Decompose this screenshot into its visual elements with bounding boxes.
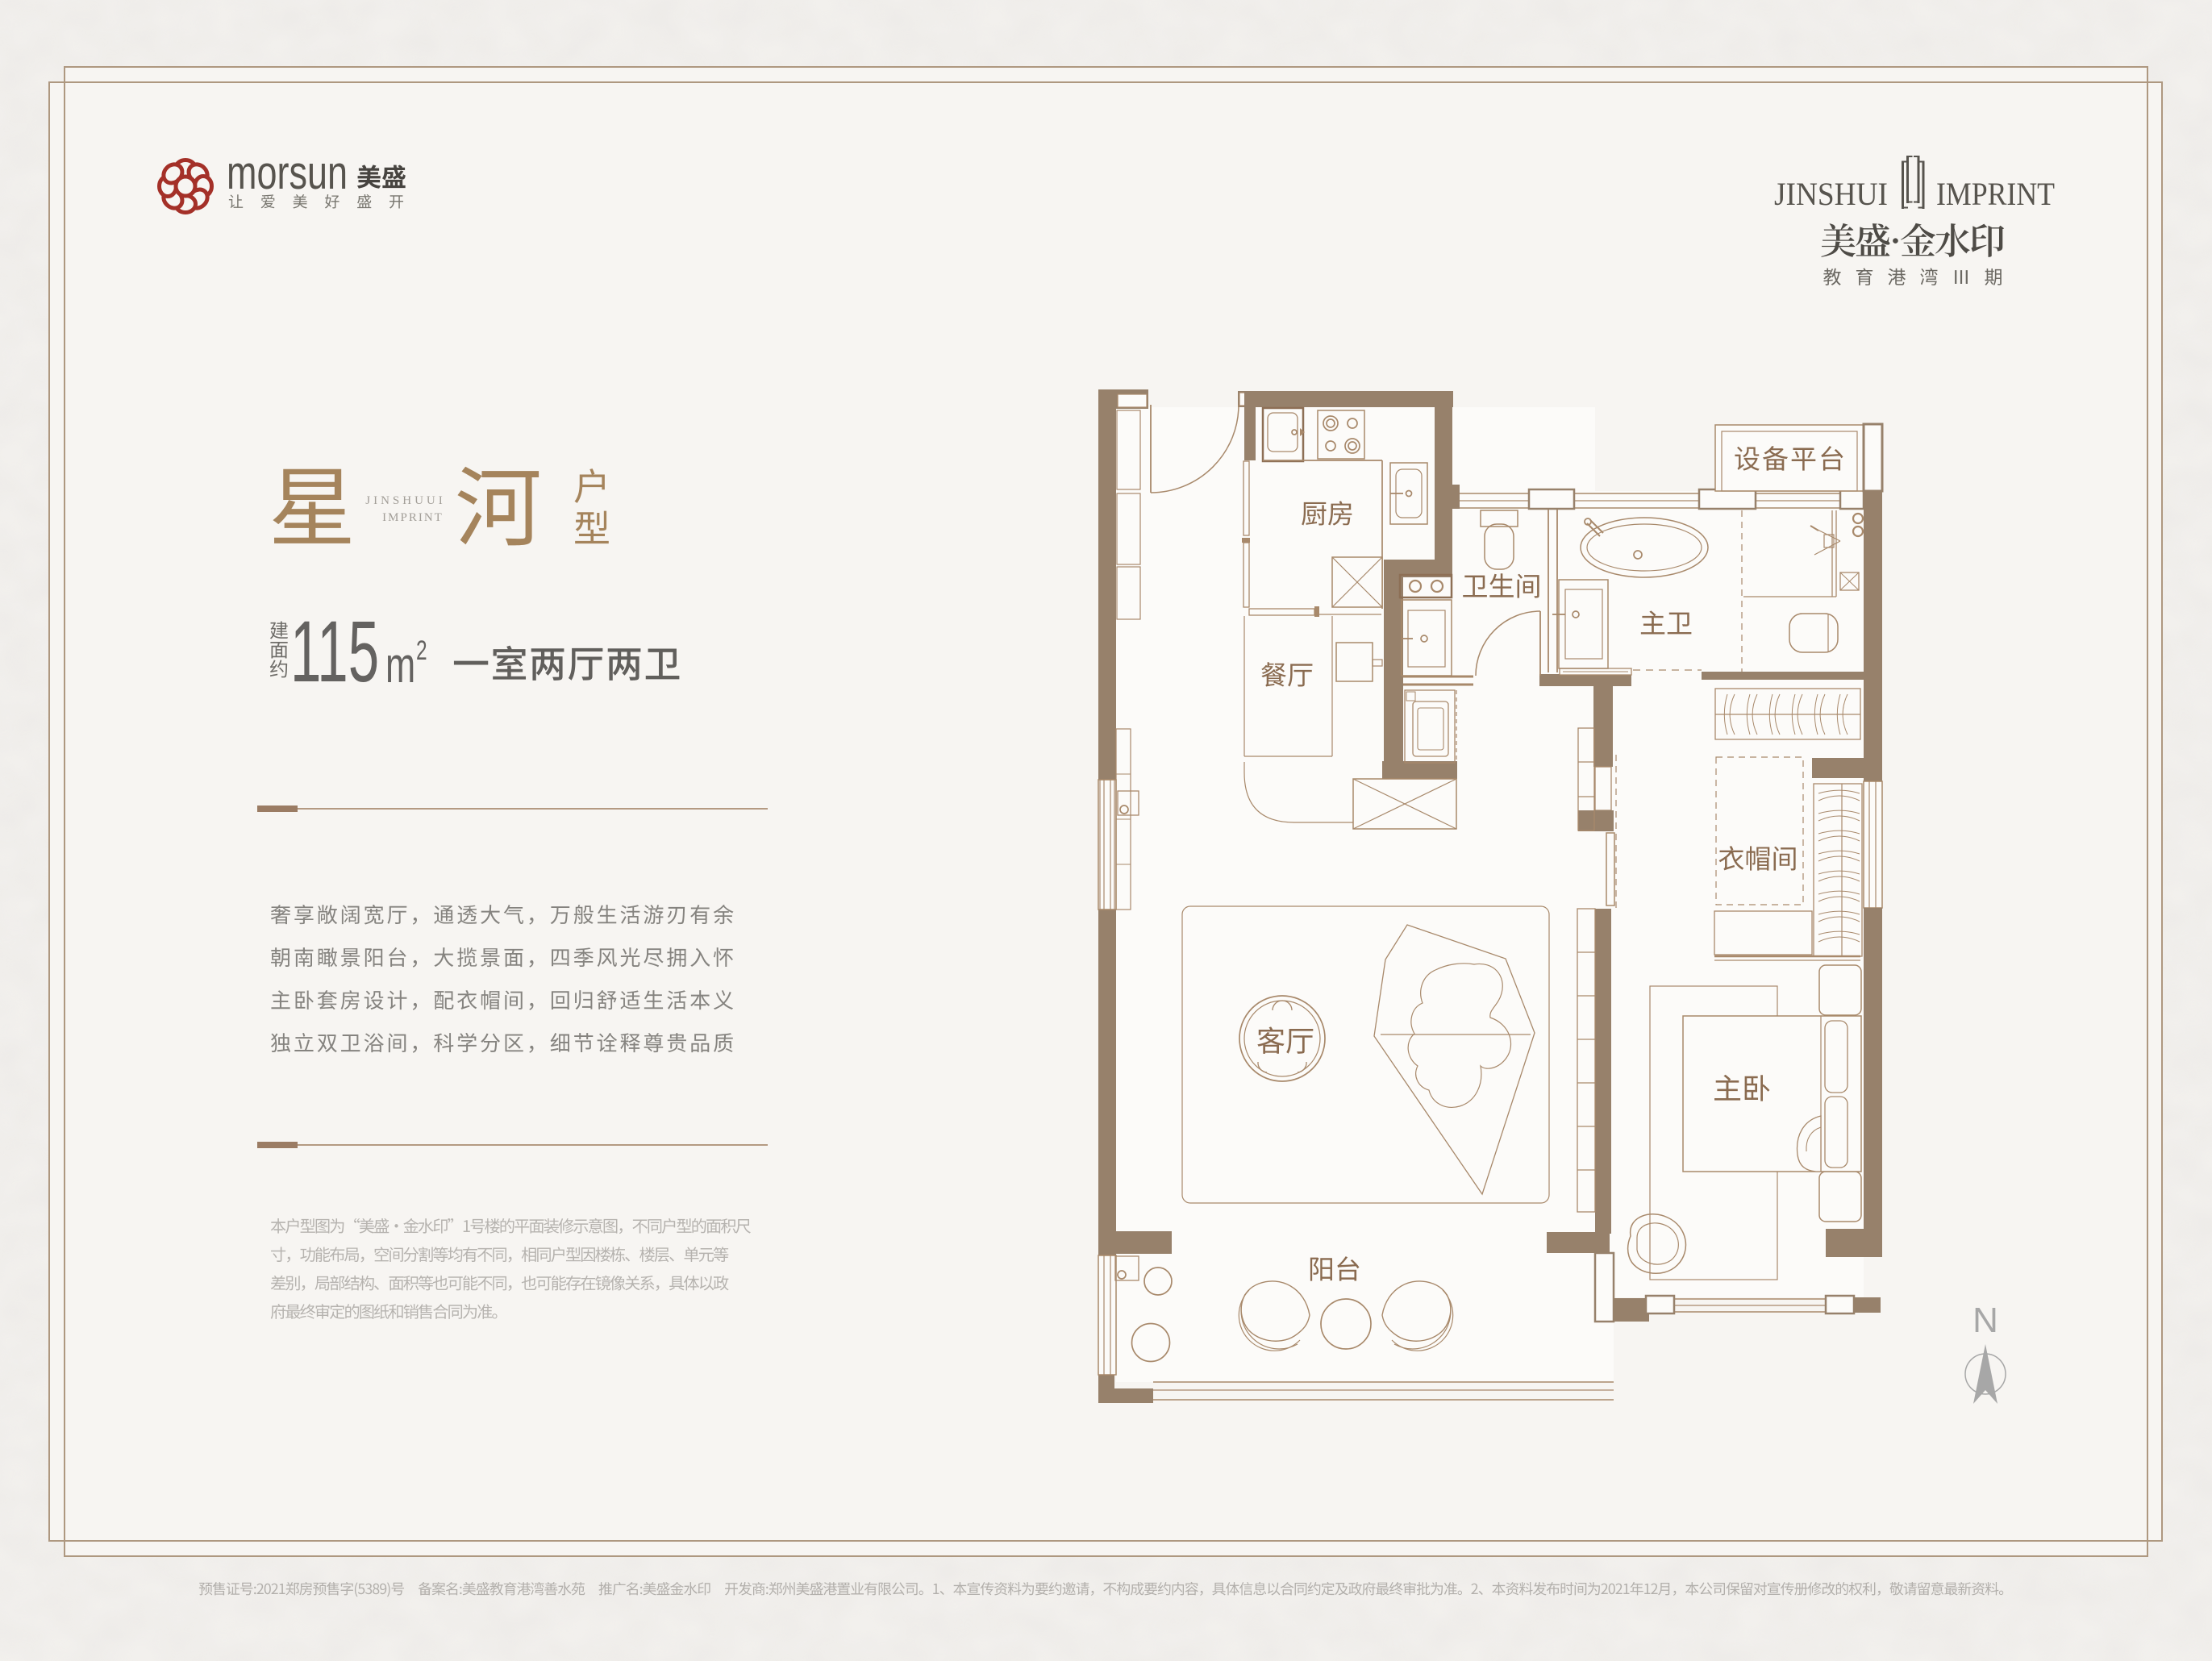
svg-text:115: 115	[290, 604, 379, 701]
svg-text:m: m	[385, 638, 415, 693]
svg-text:JINSHUI: JINSHUI	[1774, 176, 1888, 212]
svg-text:2: 2	[416, 635, 427, 666]
svg-text:morsun: morsun	[227, 147, 348, 199]
svg-text:JINSHUUI: JINSHUUI	[365, 494, 446, 507]
svg-text:IMPRINT: IMPRINT	[382, 511, 444, 524]
svg-text:N: N	[1972, 1301, 1998, 1340]
svg-text:IMPRINT: IMPRINT	[1936, 176, 2055, 212]
